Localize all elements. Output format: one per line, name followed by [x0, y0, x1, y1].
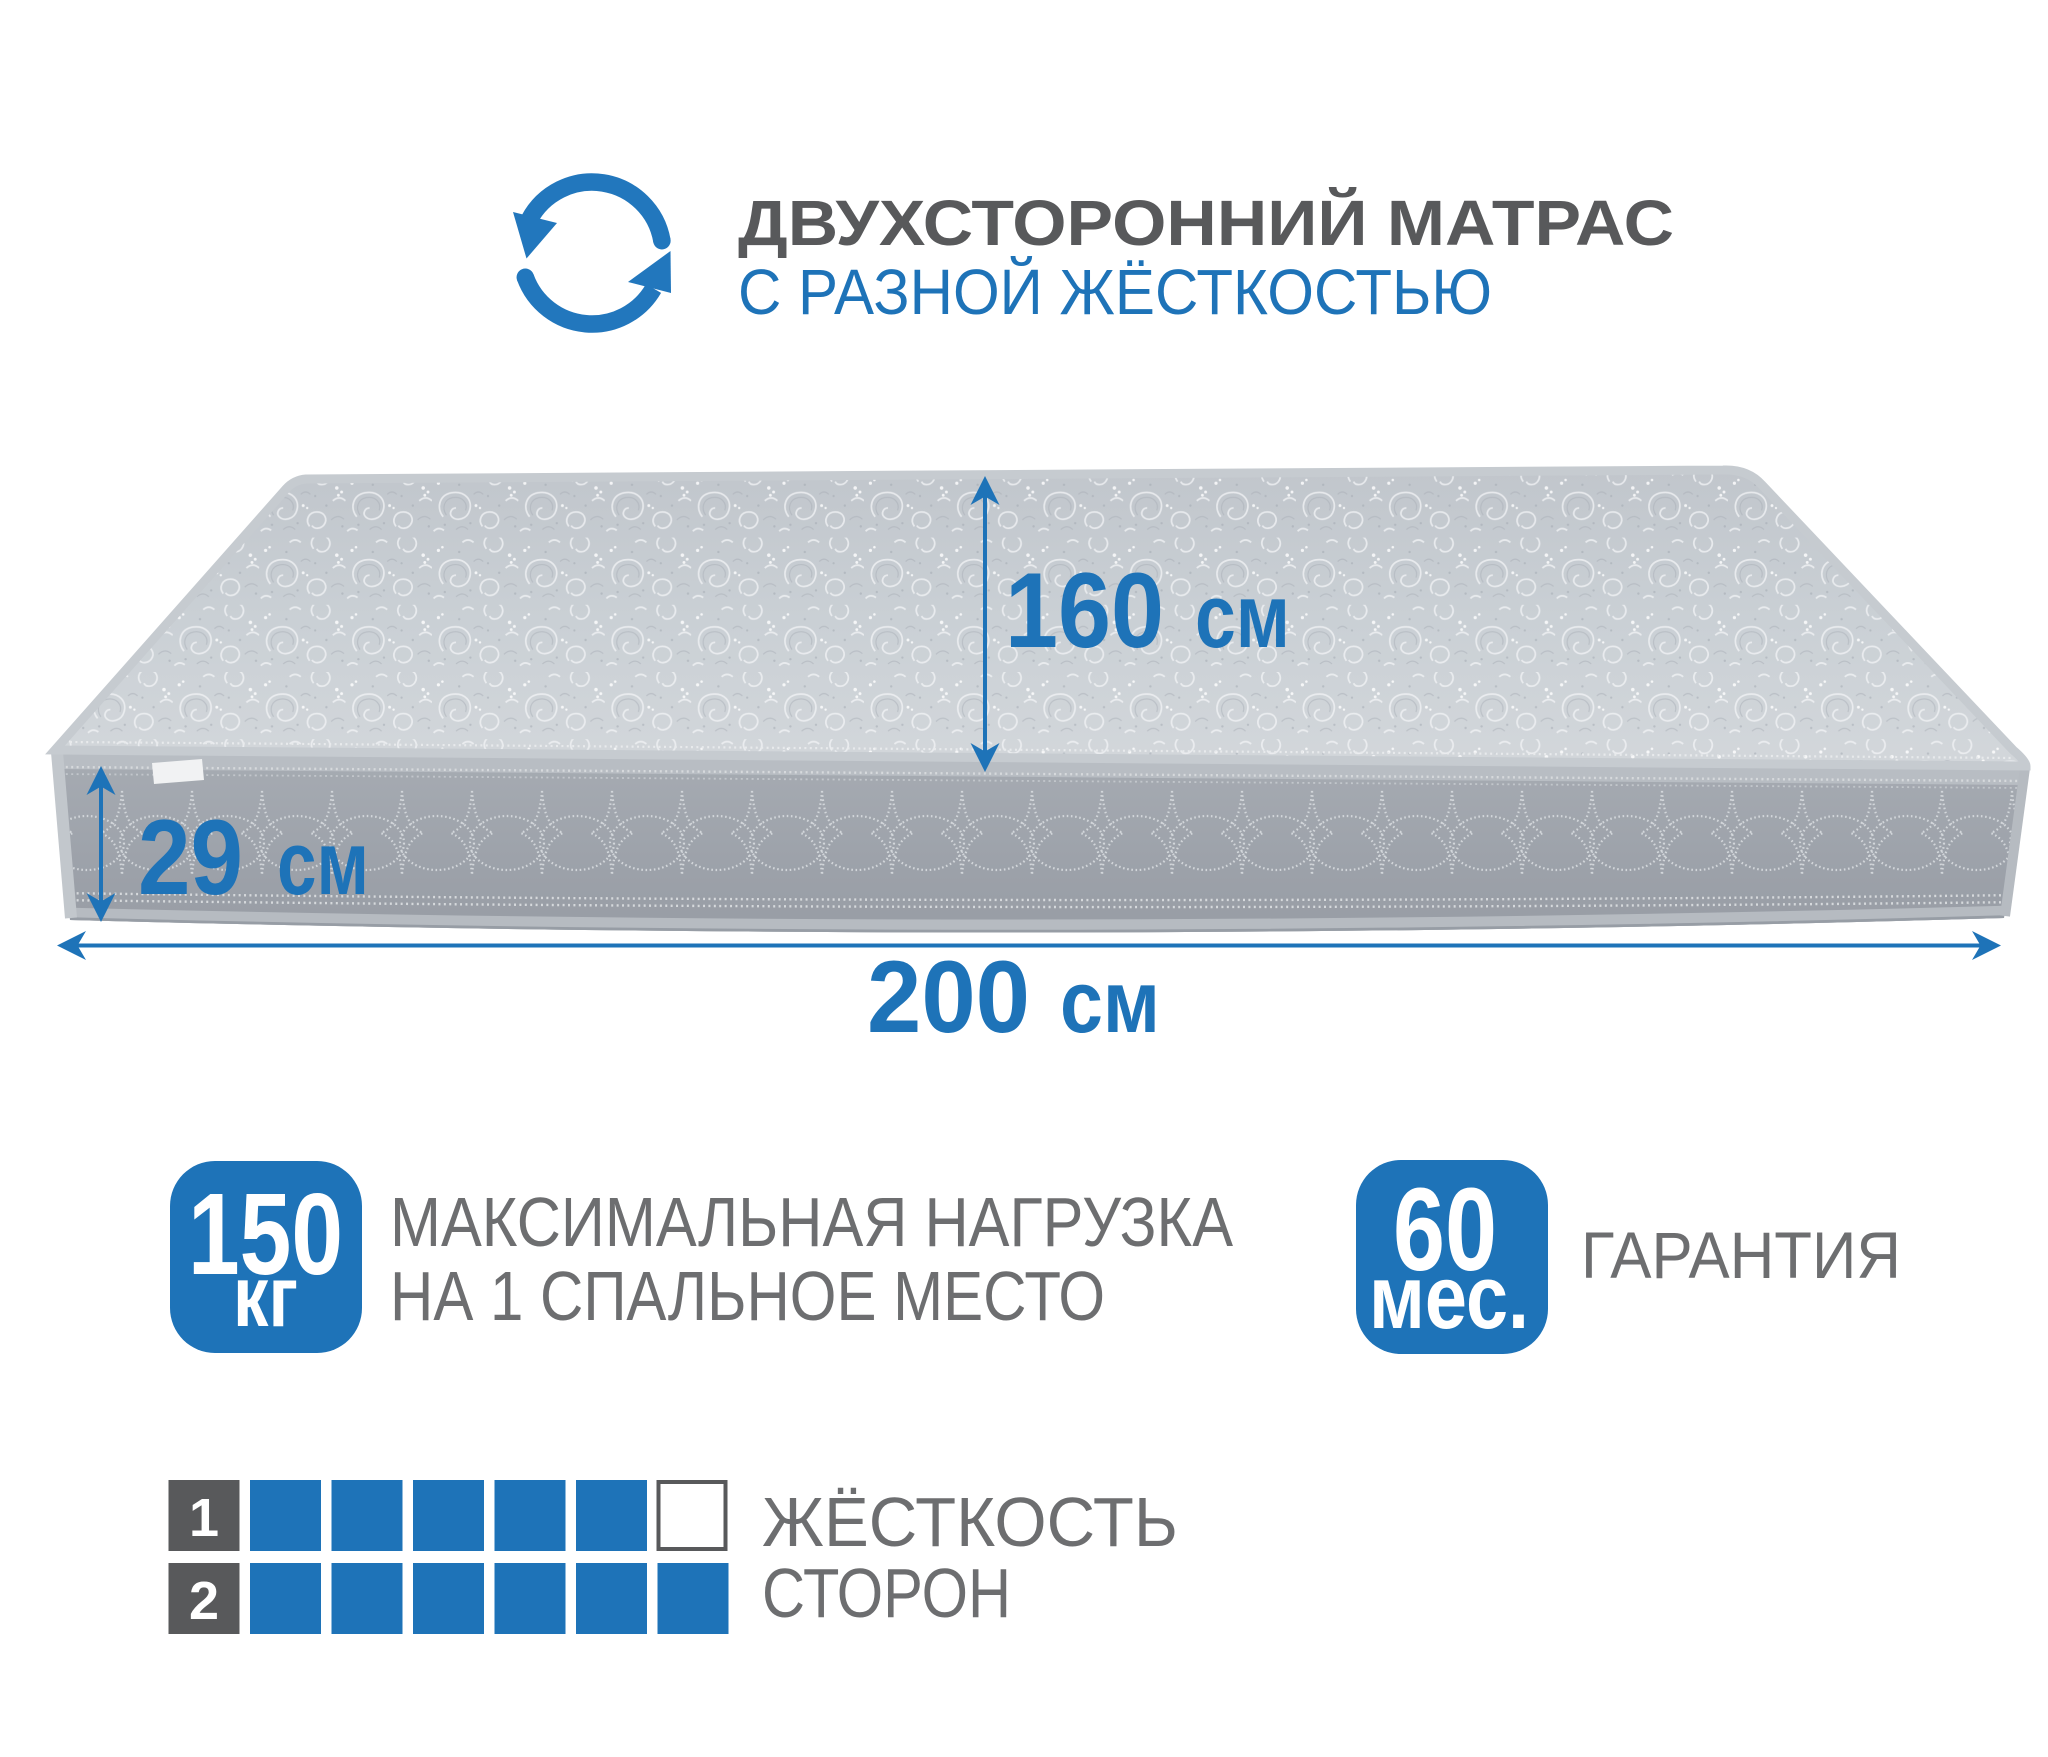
svg-text:МАКСИМАЛЬНАЯ НАГРУЗКА: МАКСИМАЛЬНАЯ НАГРУЗКА	[390, 1183, 1233, 1261]
svg-text:ЖЁСТКОСТЬ: ЖЁСТКОСТЬ	[762, 1483, 1178, 1561]
svg-text:мес.: мес.	[1369, 1248, 1529, 1348]
svg-text:ГАРАНТИЯ: ГАРАНТИЯ	[1581, 1218, 1901, 1292]
svg-text:см: см	[1195, 567, 1290, 667]
svg-text:кг: кг	[233, 1249, 298, 1345]
svg-text:НА 1 СПАЛЬНОЕ МЕСТО: НА 1 СПАЛЬНОЕ МЕСТО	[390, 1257, 1105, 1335]
svg-text:ДВУХСТОРОННИЙ МАТРАС: ДВУХСТОРОННИЙ МАТРАС	[738, 186, 1674, 259]
svg-text:1: 1	[189, 1488, 219, 1548]
svg-text:2: 2	[189, 1571, 219, 1631]
svg-text:160: 160	[1005, 550, 1164, 670]
svg-text:см: см	[1060, 952, 1160, 1051]
svg-text:СТОРОН: СТОРОН	[762, 1554, 1011, 1632]
svg-text:С РАЗНОЙ ЖЁСТКОСТЬЮ: С РАЗНОЙ ЖЁСТКОСТЬЮ	[738, 255, 1492, 328]
svg-text:см: см	[277, 814, 369, 914]
svg-text:29: 29	[138, 797, 243, 917]
svg-text:200: 200	[867, 940, 1030, 1054]
